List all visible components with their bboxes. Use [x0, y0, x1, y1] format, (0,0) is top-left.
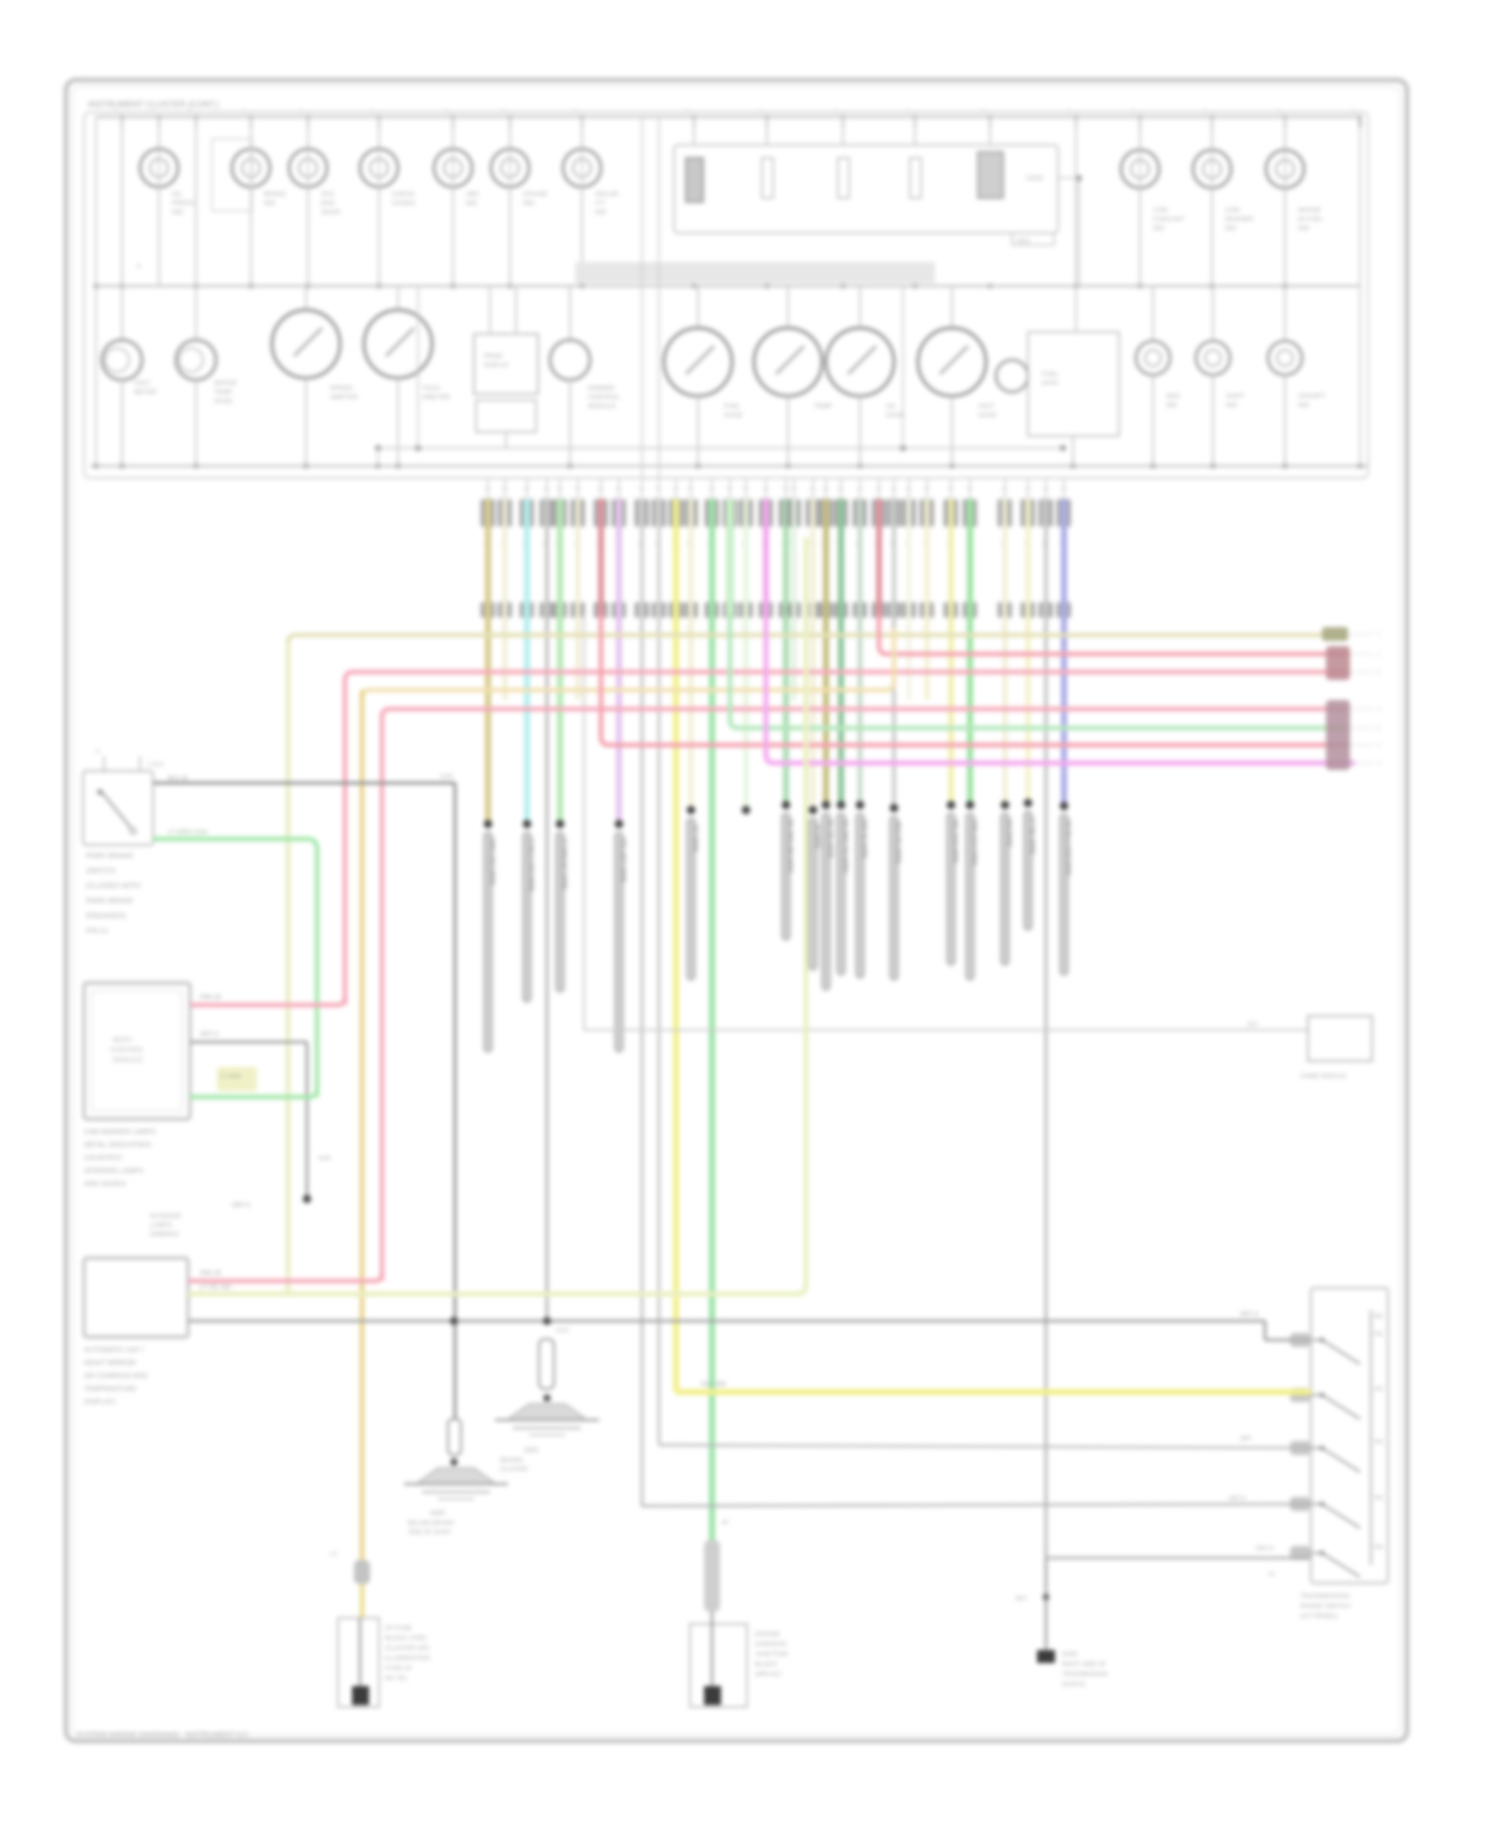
- svg-text:IND: IND: [1166, 402, 1178, 409]
- svg-text:A9: A9: [762, 486, 768, 492]
- svg-text:A9: A9: [790, 486, 796, 492]
- svg-text:GRN 817: GRN 817: [755, 1671, 782, 1678]
- svg-text:METAL INDICATORS: METAL INDICATORS: [84, 1142, 151, 1149]
- svg-text:(A/T PRNDL): (A/T PRNDL): [1300, 1613, 1338, 1620]
- svg-text:C3: C3: [330, 1552, 337, 1558]
- svg-text:C: C: [1377, 761, 1381, 767]
- svg-text:IN FUEL: IN FUEL: [1298, 216, 1323, 223]
- svg-text:PARK BRAKE: PARK BRAKE: [86, 851, 133, 860]
- svg-text:INSTRUMENT CLUSTER (CONT.): INSTRUMENT CLUSTER (CONT.): [88, 99, 219, 109]
- svg-text:DK BLU 1408 WIRE: DK BLU 1408 WIRE: [1065, 820, 1072, 876]
- svg-text:C2: C2: [1268, 1572, 1275, 1578]
- svg-text:ENG: ENG: [321, 200, 335, 207]
- svg-text:1: 1: [502, 109, 505, 115]
- svg-text:1: 1: [1068, 109, 1071, 115]
- svg-text:A9: A9: [574, 486, 580, 492]
- svg-text:B: B: [1042, 541, 1045, 546]
- svg-text:LT BLU 1452 WIRE: LT BLU 1452 WIRE: [528, 838, 535, 892]
- svg-text:BLOCK (TOP): BLOCK (TOP): [385, 1635, 426, 1642]
- svg-text:A9: A9: [822, 486, 828, 492]
- svg-text:A9: A9: [615, 486, 621, 492]
- svg-text:B: B: [543, 541, 546, 546]
- svg-text:C: C: [1377, 707, 1381, 713]
- svg-text:ILLUMINATION: ILLUMINATION: [385, 1655, 430, 1662]
- svg-text:WASHER: WASHER: [1225, 216, 1254, 223]
- svg-text:SOON: SOON: [321, 209, 340, 216]
- svg-text:COOLANT: COOLANT: [1153, 216, 1184, 223]
- svg-text:DK YEL WIRE: DK YEL WIRE: [827, 819, 834, 859]
- svg-text:A9: A9: [856, 486, 862, 492]
- svg-text:S206: S206: [318, 1156, 331, 1162]
- svg-text:IND: IND: [523, 200, 535, 207]
- svg-text:BLK 33: BLK 33: [168, 776, 188, 782]
- svg-text:C: C: [1377, 632, 1381, 638]
- svg-text:IND: IND: [595, 209, 607, 216]
- svg-text:GRY 81 WIRE: GRY 81 WIRE: [861, 819, 868, 859]
- svg-text:TEMP: TEMP: [214, 389, 232, 396]
- svg-text:IND: IND: [466, 200, 478, 207]
- svg-text:GAGE: GAGE: [724, 412, 743, 419]
- svg-text:GRN 1134 WIRE: GRN 1134 WIRE: [971, 819, 978, 866]
- svg-text:PARK BRAKE: PARK BRAKE: [86, 896, 133, 905]
- svg-text:YEL 1450: YEL 1450: [700, 1382, 727, 1388]
- svg-text:A9: A9: [687, 486, 693, 492]
- svg-text:ORN 1451 WIRE: ORN 1451 WIRE: [489, 838, 496, 885]
- svg-text:1: 1: [759, 109, 762, 115]
- svg-text:P2: P2: [1375, 1544, 1383, 1551]
- svg-text:A9: A9: [501, 486, 507, 492]
- svg-text:PNK 39: PNK 39: [200, 1271, 221, 1277]
- svg-text:HARNESS: HARNESS: [755, 1641, 787, 1648]
- svg-text:CRUISE: CRUISE: [523, 191, 548, 198]
- svg-text:NIGHT MIRROR: NIGHT MIRROR: [84, 1360, 136, 1367]
- svg-text:BLK 451 WIRE: BLK 451 WIRE: [895, 822, 902, 864]
- svg-text:OIL: OIL: [886, 403, 897, 410]
- svg-text:BLOCK: BLOCK: [755, 1661, 778, 1668]
- svg-text:B: B: [655, 541, 658, 546]
- svg-text:DK YEL: DK YEL: [385, 1675, 408, 1682]
- svg-text:1: 1: [1204, 109, 1207, 115]
- svg-text:1: 1: [114, 109, 117, 115]
- svg-text:PNK 39: PNK 39: [200, 995, 221, 1001]
- svg-text:BRAKE: BRAKE: [264, 191, 287, 198]
- svg-text:A9: A9: [905, 486, 911, 492]
- svg-text:MODULE: MODULE: [113, 1057, 143, 1064]
- svg-text:1: 1: [243, 109, 246, 115]
- svg-text:CLUSTER: CLUSTER: [500, 1467, 529, 1473]
- svg-text:1: 1: [574, 109, 577, 115]
- svg-text:LT GRN 817 WIRE: LT GRN 817 WIRE: [561, 838, 568, 890]
- svg-text:A9: A9: [837, 486, 843, 492]
- svg-text:A9: A9: [672, 486, 678, 492]
- svg-text:DISPLAY): DISPLAY): [84, 1399, 115, 1406]
- svg-text:B: B: [890, 541, 893, 546]
- svg-text:1: 1: [835, 109, 838, 115]
- svg-text:BLK: BLK: [1016, 1596, 1027, 1602]
- svg-text:A9: A9: [556, 486, 562, 492]
- svg-text:A9: A9: [1042, 486, 1048, 492]
- svg-text:DIMMER: DIMMER: [588, 385, 615, 392]
- svg-text:B1: B1: [1375, 1313, 1383, 1320]
- svg-text:GRY 8: GRY 8: [1240, 1312, 1258, 1318]
- svg-text:A: A: [137, 264, 141, 270]
- svg-text:LT GRN 1134: LT GRN 1134: [168, 829, 207, 836]
- svg-text:IND: IND: [1298, 225, 1310, 232]
- svg-text:A9: A9: [597, 486, 603, 492]
- svg-text:1: 1: [371, 109, 374, 115]
- svg-text:A9: A9: [809, 486, 815, 492]
- svg-text:CONTROL: CONTROL: [110, 1047, 144, 1054]
- svg-text:P2: P2: [1375, 1495, 1383, 1502]
- svg-text:FUEL: FUEL: [1042, 371, 1059, 378]
- svg-text:A9: A9: [708, 486, 714, 492]
- svg-text:DATA: DATA: [1042, 380, 1059, 387]
- svg-text:1: 1: [300, 109, 303, 115]
- svg-text:A9: A9: [655, 486, 661, 492]
- svg-text:A: A: [96, 749, 100, 755]
- svg-text:B: B: [638, 541, 641, 546]
- svg-text:ENGAGED): ENGAGED): [86, 911, 127, 920]
- svg-text:PRESS: PRESS: [172, 200, 195, 207]
- svg-text:A9: A9: [1024, 486, 1030, 492]
- svg-text:OMETER: OMETER: [422, 394, 450, 401]
- svg-text:S210: S210: [556, 1328, 569, 1334]
- svg-text:ENGINE: ENGINE: [755, 1631, 781, 1638]
- svg-text:SPEED-: SPEED-: [330, 385, 354, 392]
- svg-text:GRY 8: GRY 8: [200, 1032, 218, 1038]
- svg-text:A9: A9: [782, 486, 788, 492]
- svg-text:1: 1: [686, 109, 689, 115]
- svg-text:ODO: ODO: [1016, 239, 1030, 245]
- svg-text:S239: S239: [440, 774, 453, 780]
- svg-text:TRANSMISSION: TRANSMISSION: [1300, 1593, 1350, 1600]
- svg-text:A9: A9: [1060, 486, 1066, 492]
- svg-text:COURTESY: COURTESY: [84, 1155, 123, 1162]
- svg-text:G200: G200: [430, 1511, 445, 1517]
- svg-text:DIMMING: DIMMING: [150, 1231, 179, 1238]
- svg-text:LOW: LOW: [1225, 207, 1241, 214]
- svg-text:C: C: [1377, 670, 1381, 676]
- svg-text:CAB MARKER LAMPS: CAB MARKER LAMPS: [84, 1129, 156, 1136]
- svg-text:1: 1: [1352, 109, 1355, 115]
- svg-text:CLUSTER (I/P): CLUSTER (I/P): [385, 1645, 429, 1652]
- svg-text:IND: IND: [1226, 402, 1238, 409]
- svg-text:IND: IND: [1225, 225, 1237, 232]
- svg-text:AUTOMATIC DAY /: AUTOMATIC DAY /: [84, 1347, 144, 1354]
- svg-text:TRANSMISSION: TRANSMISSION: [1062, 1672, 1108, 1678]
- svg-text:(4L60-E): (4L60-E): [1062, 1682, 1085, 1688]
- svg-text:IND: IND: [1153, 225, 1165, 232]
- svg-text:A9: A9: [484, 486, 490, 492]
- svg-text:IND: IND: [172, 209, 184, 216]
- svg-text:(CLOSED WITH: (CLOSED WITH: [86, 881, 141, 890]
- svg-text:METER: METER: [134, 389, 157, 396]
- svg-text:GRY 8: GRY 8: [1256, 1546, 1273, 1552]
- svg-text:CHIME MODULE: CHIME MODULE: [1300, 1074, 1347, 1080]
- svg-text:ABS: ABS: [466, 191, 480, 198]
- svg-text:CONTROL: CONTROL: [588, 394, 620, 401]
- svg-text:TACH-: TACH-: [422, 385, 441, 392]
- svg-text:GRY 8: GRY 8: [232, 1203, 250, 1209]
- svg-text:457 WIRE: 457 WIRE: [692, 824, 699, 852]
- svg-text:C: C: [1377, 726, 1381, 732]
- svg-text:B2: B2: [722, 1520, 729, 1526]
- svg-text:C: C: [1377, 652, 1381, 658]
- svg-text:1: 1: [1132, 109, 1135, 115]
- svg-text:1: 1: [151, 109, 154, 115]
- svg-text:BODY: BODY: [113, 1037, 133, 1044]
- svg-text:GAGE: GAGE: [978, 412, 997, 419]
- svg-text:JUNCTION: JUNCTION: [755, 1651, 788, 1658]
- svg-text:A9: A9: [947, 486, 953, 492]
- svg-text:P2: P2: [1375, 1439, 1383, 1446]
- svg-text:GRY: GRY: [1240, 1436, 1252, 1442]
- svg-text:963 WIRE: 963 WIRE: [1006, 819, 1013, 847]
- svg-text:OIL: OIL: [172, 191, 183, 198]
- svg-text:LT YEL 300: LT YEL 300: [200, 1285, 231, 1291]
- svg-text:LEDS: LEDS: [1026, 175, 1044, 182]
- svg-text:PPL 1807 WIRE: PPL 1807 WIRE: [620, 838, 627, 883]
- svg-text:ITY: ITY: [595, 200, 606, 207]
- svg-text:A9: A9: [966, 486, 972, 492]
- svg-text:A9: A9: [923, 486, 929, 492]
- svg-text:G201: G201: [524, 1448, 539, 1454]
- svg-text:SECUR-: SECUR-: [595, 191, 620, 198]
- svg-text:A9: A9: [638, 486, 644, 492]
- svg-text:P/N C1: P/N C1: [86, 928, 109, 935]
- svg-text:1: 1: [445, 109, 448, 115]
- svg-text:LT GRN: LT GRN: [220, 1074, 241, 1080]
- svg-text:G103: G103: [1062, 1652, 1077, 1658]
- svg-text:1: 1: [188, 109, 191, 115]
- svg-text:UPSHIFT: UPSHIFT: [1298, 393, 1326, 400]
- svg-text:A9: A9: [890, 486, 896, 492]
- svg-text:GRY 8: GRY 8: [1229, 1496, 1245, 1502]
- svg-text:1: 1: [982, 109, 985, 115]
- svg-text:A9: A9: [726, 486, 732, 492]
- svg-text:LT YEL WIRE: LT YEL WIRE: [1029, 817, 1036, 855]
- svg-text:BELOW DRIVER: BELOW DRIVER: [408, 1521, 455, 1527]
- svg-text:LOW: LOW: [1153, 207, 1169, 214]
- svg-text:SHIFT: SHIFT: [1226, 393, 1245, 400]
- svg-text:IND: IND: [264, 200, 276, 207]
- svg-text:OMETER: OMETER: [330, 394, 358, 401]
- svg-text:INTERIOR LAMPS: INTERIOR LAMPS: [84, 1168, 143, 1175]
- svg-text:YEL 1136 WIRE: YEL 1136 WIRE: [952, 819, 959, 863]
- svg-text:SYSTEM WIRING DIAGRAMS - INSTR: SYSTEM WIRING DIAGRAMS - INSTRUMENT 6.5: [76, 1730, 247, 1739]
- svg-text:PRND: PRND: [484, 353, 503, 360]
- svg-text:A9: A9: [543, 486, 549, 492]
- svg-text:TEMPERATURE: TEMPERATURE: [84, 1386, 137, 1393]
- svg-text:A9: A9: [1001, 486, 1007, 492]
- svg-text:A9: A9: [523, 486, 529, 492]
- svg-text:CHECK: CHECK: [392, 191, 415, 198]
- svg-text:1: 1: [1277, 109, 1280, 115]
- svg-text:FUSE 24: FUSE 24: [385, 1665, 412, 1672]
- svg-text:TEMP: TEMP: [814, 403, 832, 410]
- svg-text:WATER: WATER: [214, 380, 237, 387]
- svg-text:(W/ COMPASS AND: (W/ COMPASS AND: [84, 1373, 148, 1380]
- svg-text:SIDE OF DASH: SIDE OF DASH: [408, 1530, 450, 1536]
- svg-text:GEN: GEN: [1166, 393, 1180, 400]
- svg-text:P2: P2: [1375, 1386, 1383, 1393]
- svg-text:SVC: SVC: [321, 191, 335, 198]
- svg-text:RIGHT SIDE OF: RIGHT SIDE OF: [1062, 1662, 1107, 1668]
- svg-text:P2: P2: [1375, 1331, 1383, 1338]
- svg-text:IND: IND: [1298, 402, 1310, 409]
- svg-text:WATER: WATER: [1298, 207, 1321, 214]
- svg-text:A9: A9: [875, 486, 881, 492]
- svg-text:LAMPS: LAMPS: [150, 1222, 173, 1229]
- svg-text:DK GRN 389 WIRE: DK GRN 389 WIRE: [787, 819, 794, 873]
- svg-text:1: 1: [907, 109, 910, 115]
- svg-text:A9: A9: [742, 486, 748, 492]
- svg-text:DISPLAY: DISPLAY: [484, 363, 509, 369]
- svg-text:GRY: GRY: [1247, 1022, 1259, 1028]
- svg-text:I/P FUSE: I/P FUSE: [385, 1625, 413, 1632]
- svg-text:VOLT: VOLT: [978, 403, 995, 410]
- svg-text:MODULE: MODULE: [588, 403, 616, 410]
- svg-text:RANGE SWITCH: RANGE SWITCH: [1300, 1603, 1351, 1610]
- svg-text:35 WIRE: 35 WIRE: [814, 824, 821, 849]
- svg-text:GAGES: GAGES: [392, 200, 416, 207]
- svg-text:FUEL: FUEL: [724, 403, 741, 410]
- svg-text:C BLK: C BLK: [148, 762, 164, 768]
- svg-text:SWITCH: SWITCH: [86, 866, 116, 875]
- svg-text:DK GRN 762 WIRE: DK GRN 762 WIRE: [842, 819, 849, 873]
- svg-text:AND GAGES: AND GAGES: [84, 1181, 126, 1188]
- svg-text:BEHIND: BEHIND: [500, 1458, 523, 1464]
- svg-text:VOLT: VOLT: [134, 380, 151, 387]
- svg-text:INTERIOR: INTERIOR: [150, 1213, 181, 1220]
- svg-text:C: C: [1377, 743, 1381, 749]
- svg-text:GAGE: GAGE: [214, 398, 233, 405]
